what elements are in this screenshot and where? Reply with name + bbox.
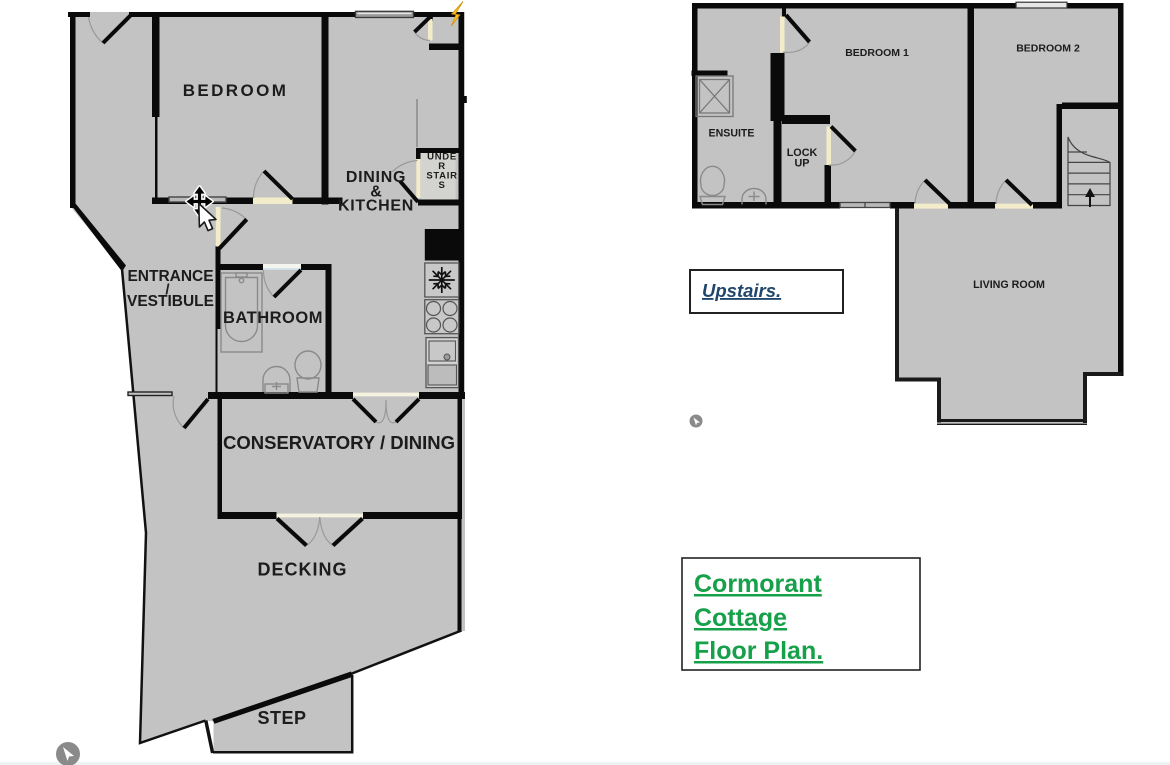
svg-text:ENSUITE: ENSUITE xyxy=(709,128,755,140)
svg-text:CONSERVATORY / DINING: CONSERVATORY / DINING xyxy=(223,432,455,453)
svg-text:VESTIBULE: VESTIBULE xyxy=(127,293,214,310)
svg-text:LIVING ROOM: LIVING ROOM xyxy=(973,279,1045,291)
svg-text:BEDROOM 1: BEDROOM 1 xyxy=(845,47,909,59)
svg-text:ENTRANCE: ENTRANCE xyxy=(127,268,213,285)
svg-text:STEP: STEP xyxy=(257,708,306,728)
svg-text:UP: UP xyxy=(795,158,810,170)
svg-text:Cottage: Cottage xyxy=(694,604,787,632)
svg-text:Floor Plan.: Floor Plan. xyxy=(694,637,823,665)
svg-text:S: S xyxy=(438,180,445,191)
svg-text:Cormorant: Cormorant xyxy=(694,570,822,598)
svg-text:DECKING: DECKING xyxy=(257,560,347,580)
svg-text:BATHROOM: BATHROOM xyxy=(223,309,323,327)
svg-text:BEDROOM 2: BEDROOM 2 xyxy=(1016,43,1080,55)
svg-text:BEDROOM: BEDROOM xyxy=(183,81,289,100)
svg-text:KITCHEN: KITCHEN xyxy=(338,198,414,215)
svg-text:Upstairs.: Upstairs. xyxy=(702,280,781,301)
